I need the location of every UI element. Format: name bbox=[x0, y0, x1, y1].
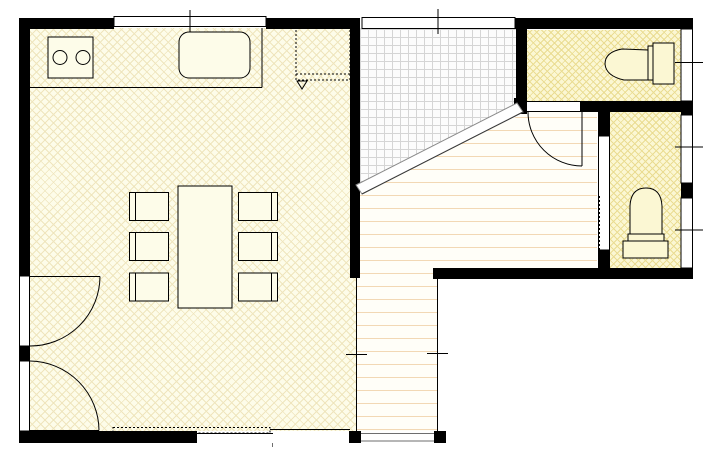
plan-linework bbox=[0, 0, 712, 463]
corridor bbox=[346, 278, 448, 441]
diagonal-partition bbox=[356, 103, 523, 194]
dining-chair[interactable] bbox=[130, 273, 169, 301]
wall-bath2-left-upper bbox=[598, 112, 610, 136]
wall-top-right bbox=[515, 18, 693, 29]
sink[interactable] bbox=[179, 32, 250, 78]
wall-bottom-right-wing bbox=[433, 268, 693, 279]
post-corridor-right bbox=[434, 431, 446, 443]
diagonal-wall-inner-edge bbox=[362, 112, 523, 194]
door-swing-arrow-icon bbox=[297, 81, 307, 89]
cooktop[interactable] bbox=[48, 37, 93, 78]
floor-plan bbox=[0, 0, 712, 463]
dining-table[interactable] bbox=[178, 186, 232, 308]
wall-right-seg-a bbox=[681, 101, 693, 115]
wall-top-left bbox=[19, 18, 114, 29]
refrigerator-dashed[interactable] bbox=[296, 28, 350, 89]
dining-chair[interactable] bbox=[239, 233, 278, 261]
door-opening-left-1[interactable] bbox=[20, 276, 30, 346]
toilet-bathroom1[interactable] bbox=[605, 43, 674, 84]
post-corridor-left bbox=[349, 431, 361, 443]
entry-door-lower[interactable] bbox=[30, 361, 99, 431]
wall-center-vertical bbox=[350, 18, 360, 278]
kitchen[interactable] bbox=[30, 28, 350, 89]
window-right-3[interactable] bbox=[681, 198, 693, 268]
dining-chair[interactable] bbox=[130, 193, 169, 221]
toilet-seat-hinge bbox=[628, 234, 664, 241]
windows[interactable] bbox=[20, 9, 704, 431]
door-opening-left-2[interactable] bbox=[20, 361, 30, 431]
wall-bottom-left bbox=[19, 431, 197, 443]
bathroom1-door[interactable] bbox=[527, 102, 582, 167]
toilet-tank bbox=[653, 43, 674, 84]
wall-top-mid bbox=[266, 18, 360, 29]
wall-bath-divider bbox=[580, 101, 693, 112]
wall-left-mullion bbox=[19, 346, 30, 361]
window-right-2[interactable] bbox=[681, 115, 693, 183]
dining-chair[interactable] bbox=[239, 273, 278, 301]
window-right-1[interactable] bbox=[681, 29, 693, 101]
burner-icon bbox=[76, 51, 90, 65]
toilet-bathroom2[interactable] bbox=[623, 188, 668, 258]
doors[interactable] bbox=[30, 102, 582, 431]
burner-icon bbox=[53, 51, 67, 65]
toilet-tank bbox=[623, 241, 668, 258]
toilet-bowl bbox=[605, 49, 648, 80]
dining-set[interactable] bbox=[130, 186, 278, 308]
bath2-doorway[interactable] bbox=[599, 136, 610, 250]
toilet-bowl bbox=[630, 188, 662, 236]
entry-door-upper[interactable] bbox=[30, 277, 100, 347]
wall-left bbox=[19, 18, 30, 276]
dining-chair[interactable] bbox=[239, 193, 278, 221]
wall-right-seg-b bbox=[681, 183, 693, 198]
dining-chair[interactable] bbox=[130, 233, 169, 261]
diagonal-wall-band bbox=[356, 103, 523, 194]
